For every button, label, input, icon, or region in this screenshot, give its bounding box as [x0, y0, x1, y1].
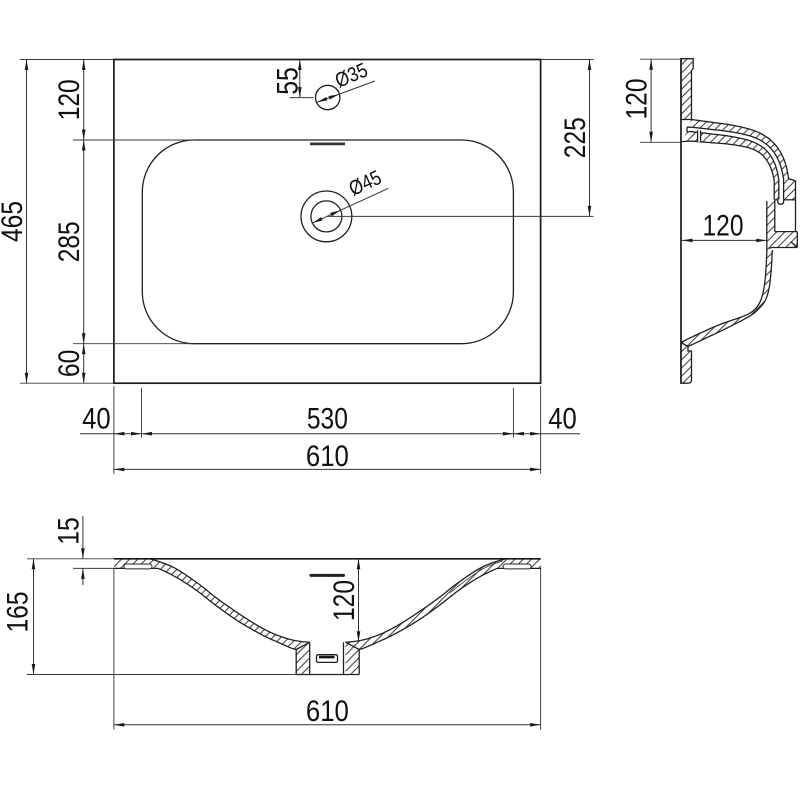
svg-text:40: 40: [82, 403, 111, 436]
svg-text:120: 120: [53, 79, 86, 120]
svg-text:120: 120: [621, 79, 654, 120]
svg-text:120: 120: [328, 580, 361, 621]
svg-text:120: 120: [703, 209, 744, 242]
svg-text:285: 285: [53, 221, 86, 262]
svg-text:610: 610: [306, 695, 349, 728]
svg-text:530: 530: [307, 403, 348, 436]
svg-text:60: 60: [53, 350, 86, 378]
svg-text:55: 55: [271, 67, 304, 95]
svg-text:225: 225: [559, 117, 592, 158]
svg-text:40: 40: [548, 403, 577, 436]
svg-text:610: 610: [306, 440, 349, 473]
svg-text:465: 465: [0, 201, 29, 242]
svg-text:15: 15: [52, 517, 85, 545]
svg-text:165: 165: [2, 592, 35, 633]
